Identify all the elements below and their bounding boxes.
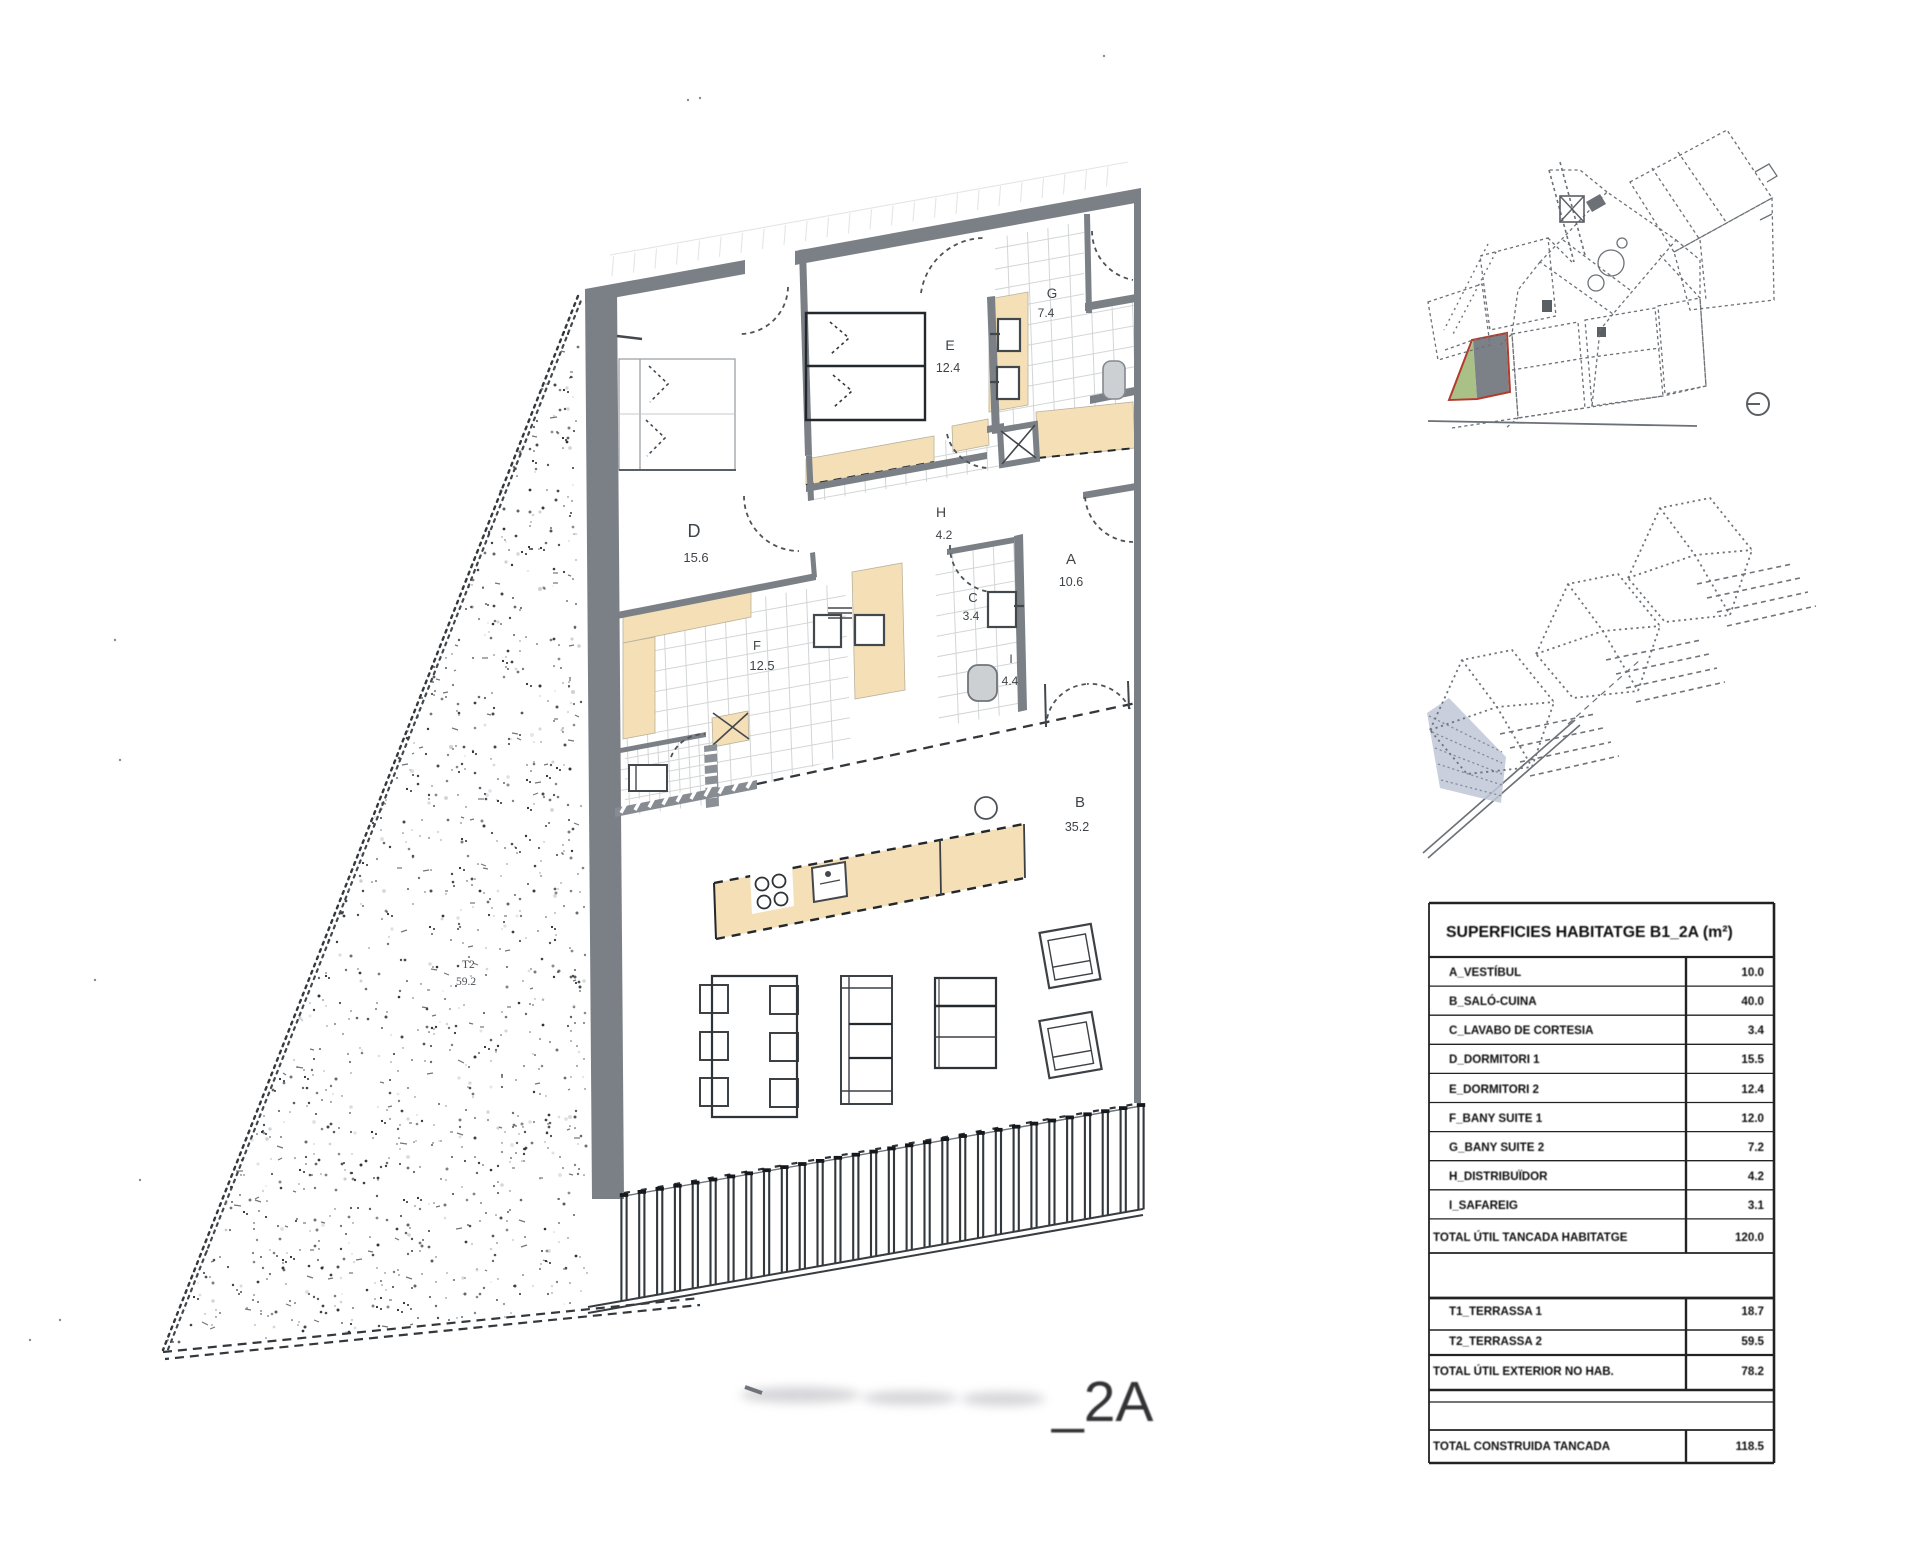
svg-text:E: E	[945, 337, 954, 353]
svg-text:G: G	[1047, 286, 1058, 301]
svg-text:15.5: 15.5	[1741, 1053, 1764, 1066]
svg-text:G_BANY SUITE 2: G_BANY SUITE 2	[1449, 1141, 1544, 1154]
svg-text:12.4: 12.4	[1741, 1083, 1764, 1096]
svg-text:F: F	[753, 638, 761, 653]
svg-text:B: B	[1075, 794, 1085, 811]
svg-text:12.0: 12.0	[1741, 1112, 1764, 1125]
svg-text:D: D	[688, 521, 701, 541]
svg-text:40.0: 40.0	[1741, 995, 1764, 1008]
svg-text:F_BANY SUITE 1: F_BANY SUITE 1	[1449, 1112, 1543, 1125]
svg-text:12.4: 12.4	[936, 361, 960, 375]
svg-text:59.5: 59.5	[1741, 1335, 1764, 1348]
svg-text:78.2: 78.2	[1741, 1365, 1764, 1378]
svg-text:T2: T2	[462, 959, 475, 971]
svg-text:SUPERFICIES HABITATGE B1_2A (m: SUPERFICIES HABITATGE B1_2A (m²)	[1446, 924, 1733, 941]
svg-text:10.0: 10.0	[1741, 966, 1764, 979]
svg-text:12.5: 12.5	[749, 658, 774, 673]
svg-text:H: H	[936, 504, 946, 520]
svg-text:TOTAL ÚTIL TANCADA HABITATGE: TOTAL ÚTIL TANCADA HABITATGE	[1433, 1231, 1628, 1244]
svg-text:4.4: 4.4	[1002, 674, 1019, 688]
svg-text:TOTAL CONSTRUIDA TANCADA: TOTAL CONSTRUIDA TANCADA	[1433, 1440, 1611, 1453]
svg-text:I_SAFAREIG: I_SAFAREIG	[1449, 1199, 1518, 1212]
svg-text:D_DORMITORI 1: D_DORMITORI 1	[1449, 1053, 1540, 1066]
svg-text:59.2: 59.2	[456, 976, 476, 988]
svg-text:H_DISTRIBUÏDOR: H_DISTRIBUÏDOR	[1449, 1170, 1548, 1183]
svg-text:T2_TERRASSA 2: T2_TERRASSA 2	[1449, 1335, 1542, 1348]
svg-text:A: A	[1066, 551, 1076, 568]
svg-text:_2A: _2A	[1051, 1370, 1153, 1434]
svg-text:E_DORMITORI 2: E_DORMITORI 2	[1449, 1083, 1539, 1096]
svg-text:35.2: 35.2	[1065, 820, 1089, 834]
svg-text:18.7: 18.7	[1741, 1305, 1764, 1318]
svg-text:10.6: 10.6	[1059, 575, 1083, 589]
svg-text:15.6: 15.6	[683, 550, 708, 565]
svg-text:4.2: 4.2	[1748, 1170, 1764, 1183]
svg-text:T1_TERRASSA 1: T1_TERRASSA 1	[1449, 1305, 1543, 1318]
svg-text:A_VESTÍBUL: A_VESTÍBUL	[1449, 966, 1521, 979]
svg-text:I: I	[1009, 652, 1012, 666]
svg-text:3.4: 3.4	[963, 609, 980, 623]
svg-text:120.0: 120.0	[1735, 1231, 1764, 1244]
svg-text:3.1: 3.1	[1748, 1199, 1765, 1212]
svg-text:C: C	[968, 590, 977, 605]
svg-text:118.5: 118.5	[1736, 1440, 1765, 1453]
svg-text:7.4: 7.4	[1038, 306, 1055, 320]
svg-text:3.4: 3.4	[1748, 1024, 1765, 1037]
svg-text:TOTAL ÚTIL EXTERIOR NO HAB.: TOTAL ÚTIL EXTERIOR NO HAB.	[1433, 1365, 1614, 1378]
svg-text:B_SALÓ-CUINA: B_SALÓ-CUINA	[1449, 995, 1537, 1008]
svg-text:C_LAVABO DE CORTESIA: C_LAVABO DE CORTESIA	[1449, 1024, 1594, 1037]
svg-text:7.2: 7.2	[1748, 1141, 1764, 1154]
svg-text:4.2: 4.2	[936, 528, 953, 542]
